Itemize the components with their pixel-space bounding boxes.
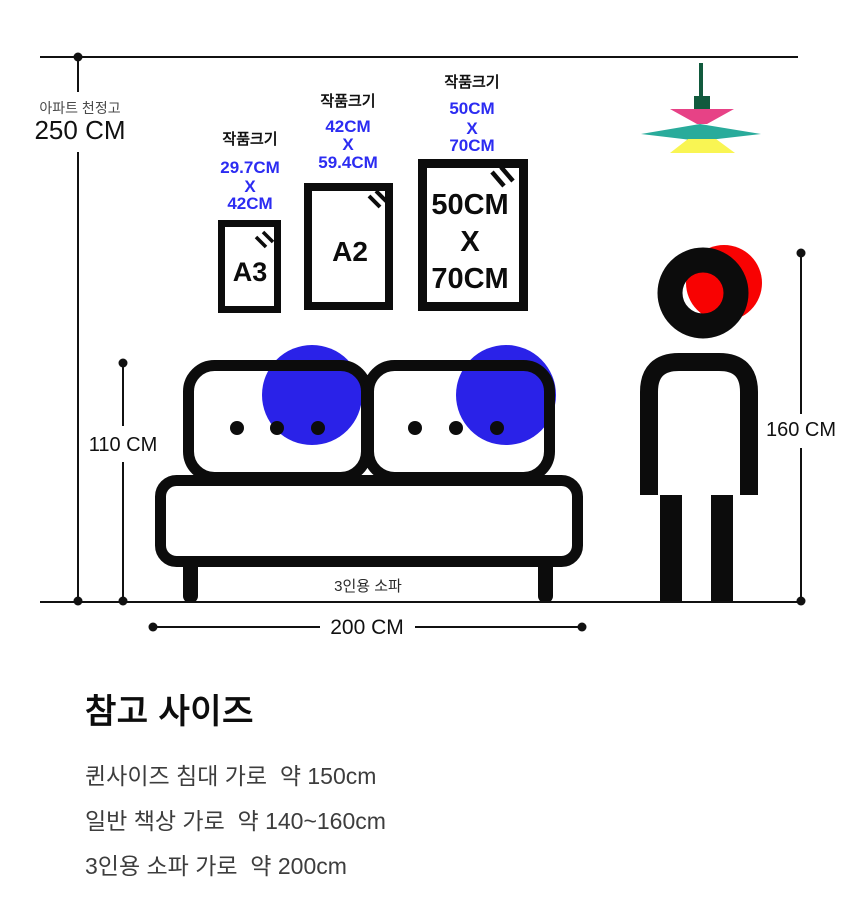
frame-a3-group: 작품크기 29.7CM X 42CM A3 bbox=[220, 130, 280, 310]
frame-a2-dim-width: 42CM bbox=[325, 117, 370, 136]
person-torso bbox=[649, 362, 749, 495]
sofa-dot bbox=[230, 421, 244, 435]
frame-a3-name: A3 bbox=[233, 257, 268, 287]
ceiling-label: 아파트 천정고 bbox=[39, 100, 120, 116]
sofa-dot bbox=[490, 421, 504, 435]
frame-5070-inner-height: 70CM bbox=[431, 263, 508, 295]
lamp-top-shade bbox=[670, 109, 734, 124]
pendant-lamp-icon bbox=[641, 63, 761, 153]
frame-5070-size-label: 작품크기 bbox=[444, 73, 499, 91]
person-height-measure: 160 CM bbox=[766, 249, 836, 606]
person-icon bbox=[649, 245, 762, 602]
size-guide-infographic: 아파트 천정고 250 CM 110 CM 작품크기 29.7CM X 42CM… bbox=[0, 0, 860, 909]
frame-a2-dim-x: X bbox=[342, 135, 354, 154]
sofa-height-measure: 110 CM bbox=[89, 359, 158, 606]
frame-5070-inner-width: 50CM bbox=[431, 189, 508, 221]
sofa-height-value: 110 CM bbox=[89, 434, 158, 456]
lamp-socket bbox=[694, 96, 710, 110]
lamp-bottom-shade bbox=[670, 139, 735, 153]
lamp-cord bbox=[699, 63, 703, 98]
reference-heading: 참고 사이즈 bbox=[85, 684, 386, 733]
frame-5070-group: 작품크기 50CM X 70CM 50CM X 70CM bbox=[423, 73, 524, 307]
sofa-width-measure: 200 CM bbox=[149, 616, 587, 639]
measure-dot bbox=[797, 597, 806, 606]
person-height-value: 160 CM bbox=[766, 419, 836, 441]
sofa-seat bbox=[161, 481, 578, 562]
frame-a2-name: A2 bbox=[332, 236, 368, 267]
sofa-label: 3인용 소파 bbox=[334, 578, 402, 595]
frame-5070-dim-width: 50CM bbox=[449, 99, 494, 118]
lamp-mid-shade bbox=[641, 124, 761, 141]
ceiling-height-value: 250 CM bbox=[34, 115, 125, 145]
sofa-icon: 3인용 소파 bbox=[161, 345, 578, 603]
frame-a2-size-label: 작품크기 bbox=[320, 92, 375, 110]
person-leg-right bbox=[711, 495, 733, 602]
ceiling-height-measure: 아파트 천정고 250 CM bbox=[34, 53, 125, 606]
sofa-width-value: 200 CM bbox=[330, 616, 404, 639]
frame-5070-inner-x: X bbox=[460, 226, 480, 258]
measure-dot bbox=[578, 623, 587, 632]
sofa-dot bbox=[408, 421, 422, 435]
frame-a3-size-label: 작품크기 bbox=[222, 130, 277, 148]
frame-a2-dim-height: 59.4CM bbox=[318, 153, 378, 172]
reference-item-sofa: 3인용 소파 가로 약 200cm bbox=[85, 851, 386, 881]
frame-5070-dim-height: 70CM bbox=[449, 136, 494, 155]
sofa-dot bbox=[449, 421, 463, 435]
sofa-dot bbox=[311, 421, 325, 435]
room-diagram: 아파트 천정고 250 CM 110 CM 작품크기 29.7CM X 42CM… bbox=[0, 0, 860, 660]
sofa-dot bbox=[270, 421, 284, 435]
person-leg-left bbox=[660, 495, 682, 602]
frame-a3-dim-height: 42CM bbox=[227, 194, 272, 213]
frame-a2-group: 작품크기 42CM X 59.4CM A2 bbox=[308, 92, 389, 306]
reference-item-bed: 퀸사이즈 침대 가로 약 150cm bbox=[85, 761, 386, 791]
reference-items: 퀸사이즈 침대 가로 약 150cm 일반 책상 가로 약 140~160cm … bbox=[85, 761, 386, 881]
reference-size-section: 참고 사이즈 퀸사이즈 침대 가로 약 150cm 일반 책상 가로 약 140… bbox=[85, 684, 386, 896]
reference-item-desk: 일반 책상 가로 약 140~160cm bbox=[85, 806, 386, 836]
frame-a3-dim-width: 29.7CM bbox=[220, 158, 280, 177]
